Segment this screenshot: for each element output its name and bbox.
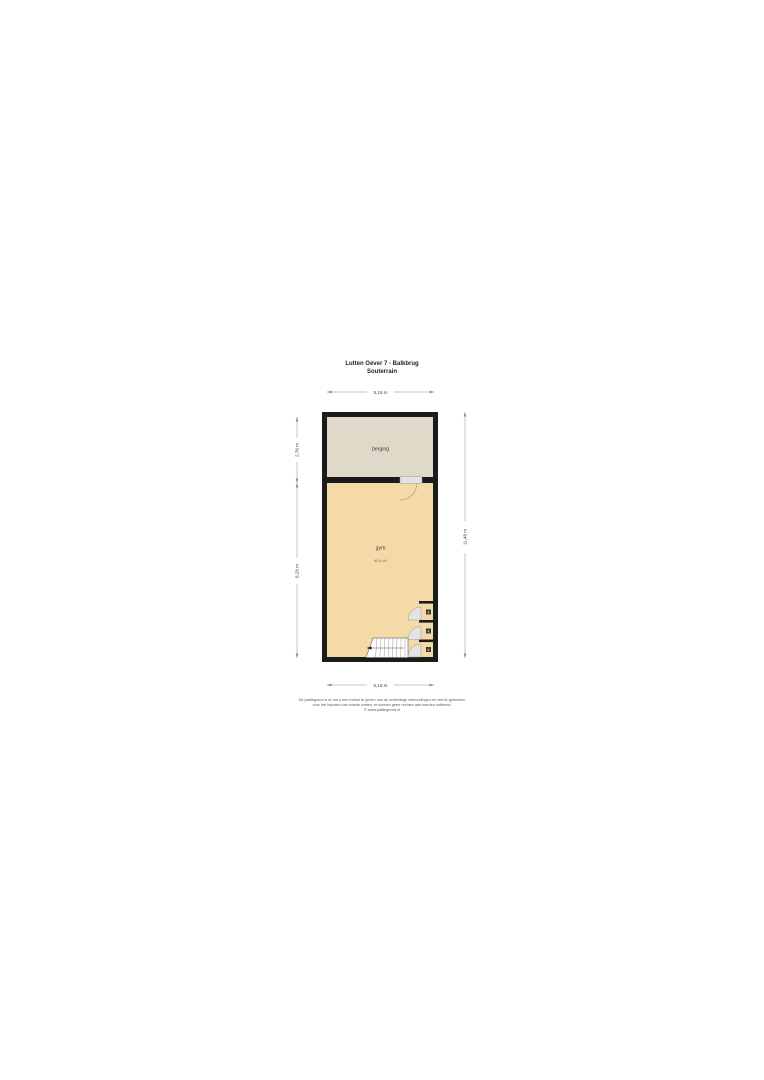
dimension-right: 11,48 m [461, 412, 470, 658]
staircase [366, 638, 408, 658]
closet-tag-3-label: k [428, 648, 430, 652]
closet-tag-1-label: k [428, 610, 430, 614]
room-berging-label: berging [372, 447, 389, 453]
dimension-bottom-label: 5,16 m [373, 683, 387, 688]
plan-title: Lutten Oever 7 - Balkbrug Souterrain [0, 361, 764, 376]
dimension-top: 5,16 m [327, 388, 434, 397]
dimension-left-lower-label: 8,28 m [295, 564, 300, 578]
door-berging-leaf [400, 477, 422, 484]
dimension-left-upper: 2,76 m [293, 417, 302, 483]
closet-tag-2-label: k [428, 629, 430, 633]
closet-wall-mid1 [419, 620, 438, 623]
dimension-left-upper-label: 2,76 m [295, 443, 300, 457]
disclaimer-line-3: © www.plattegrond.nl [0, 708, 764, 713]
room-gym-area: 40,4 m² [374, 559, 388, 563]
room-gym-label: gym [376, 546, 386, 552]
closet-wall-top [419, 601, 438, 604]
plan-title-address: Lutten Oever 7 - Balkbrug [0, 361, 764, 369]
floorplan-drawing: k k k 5,16 m [285, 385, 475, 695]
closet-wall-mid2 [419, 640, 438, 643]
dimension-top-label: 5,16 m [373, 390, 387, 395]
dimension-right-label: 11,48 m [463, 529, 468, 545]
disclaimer: De plattegrond is er om u een indruk te … [0, 698, 764, 712]
dimension-left-lower: 8,28 m [293, 483, 302, 658]
plan-title-floor: Souterrain [0, 369, 764, 377]
floorplan-page: Lutten Oever 7 - Balkbrug Souterrain k k… [0, 0, 764, 1080]
dimension-bottom: 5,16 m [327, 681, 434, 690]
